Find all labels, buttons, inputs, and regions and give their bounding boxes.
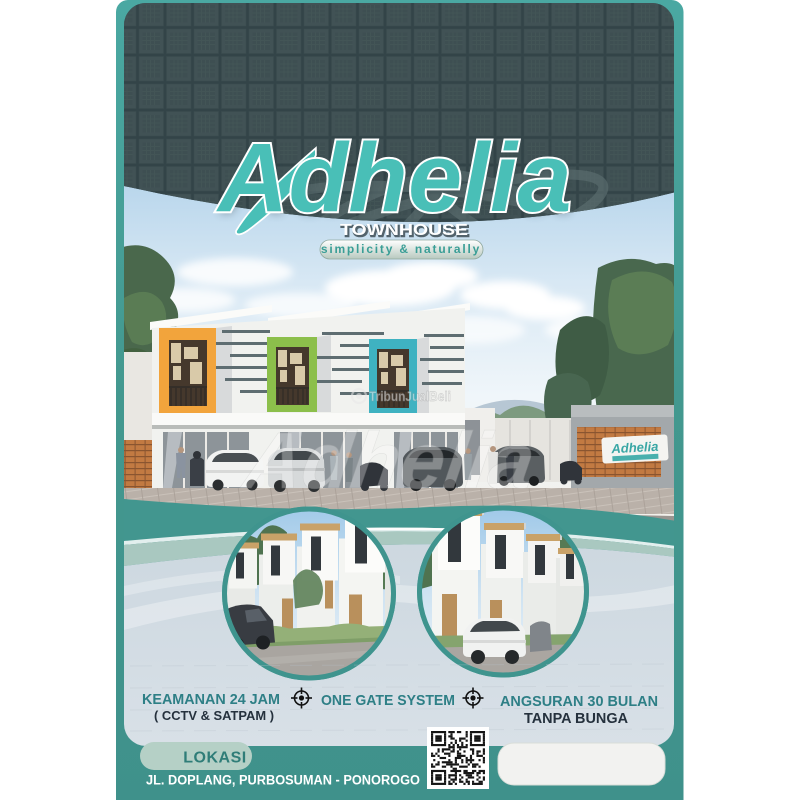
svg-text:TOWNHOUSE: TOWNHOUSE	[340, 222, 468, 239]
svg-text:JL. DOPLANG, PURBOSUMAN - PONO: JL. DOPLANG, PURBOSUMAN - PONOROGO	[146, 773, 420, 788]
svg-text:ANGSURAN 30 BULAN: ANGSURAN 30 BULAN	[500, 693, 658, 710]
svg-text:simplicity & naturally: simplicity & naturally	[321, 242, 481, 256]
svg-text:TribunJualBeli: TribunJualBeli	[369, 389, 451, 404]
svg-text:( CCTV & SATPAM ): ( CCTV & SATPAM )	[154, 708, 274, 723]
svg-text:LOKASI: LOKASI	[183, 750, 246, 767]
svg-text:Adhelia: Adhelia	[237, 416, 540, 506]
svg-text:ONE GATE SYSTEM: ONE GATE SYSTEM	[321, 692, 455, 709]
svg-text:KEAMANAN 24 JAM: KEAMANAN 24 JAM	[142, 691, 280, 708]
svg-text:TANPA BUNGA: TANPA BUNGA	[524, 711, 629, 727]
svg-text:Adhelia: Adhelia	[216, 123, 572, 232]
svg-text:Adhelia: Adhelia	[610, 439, 659, 456]
